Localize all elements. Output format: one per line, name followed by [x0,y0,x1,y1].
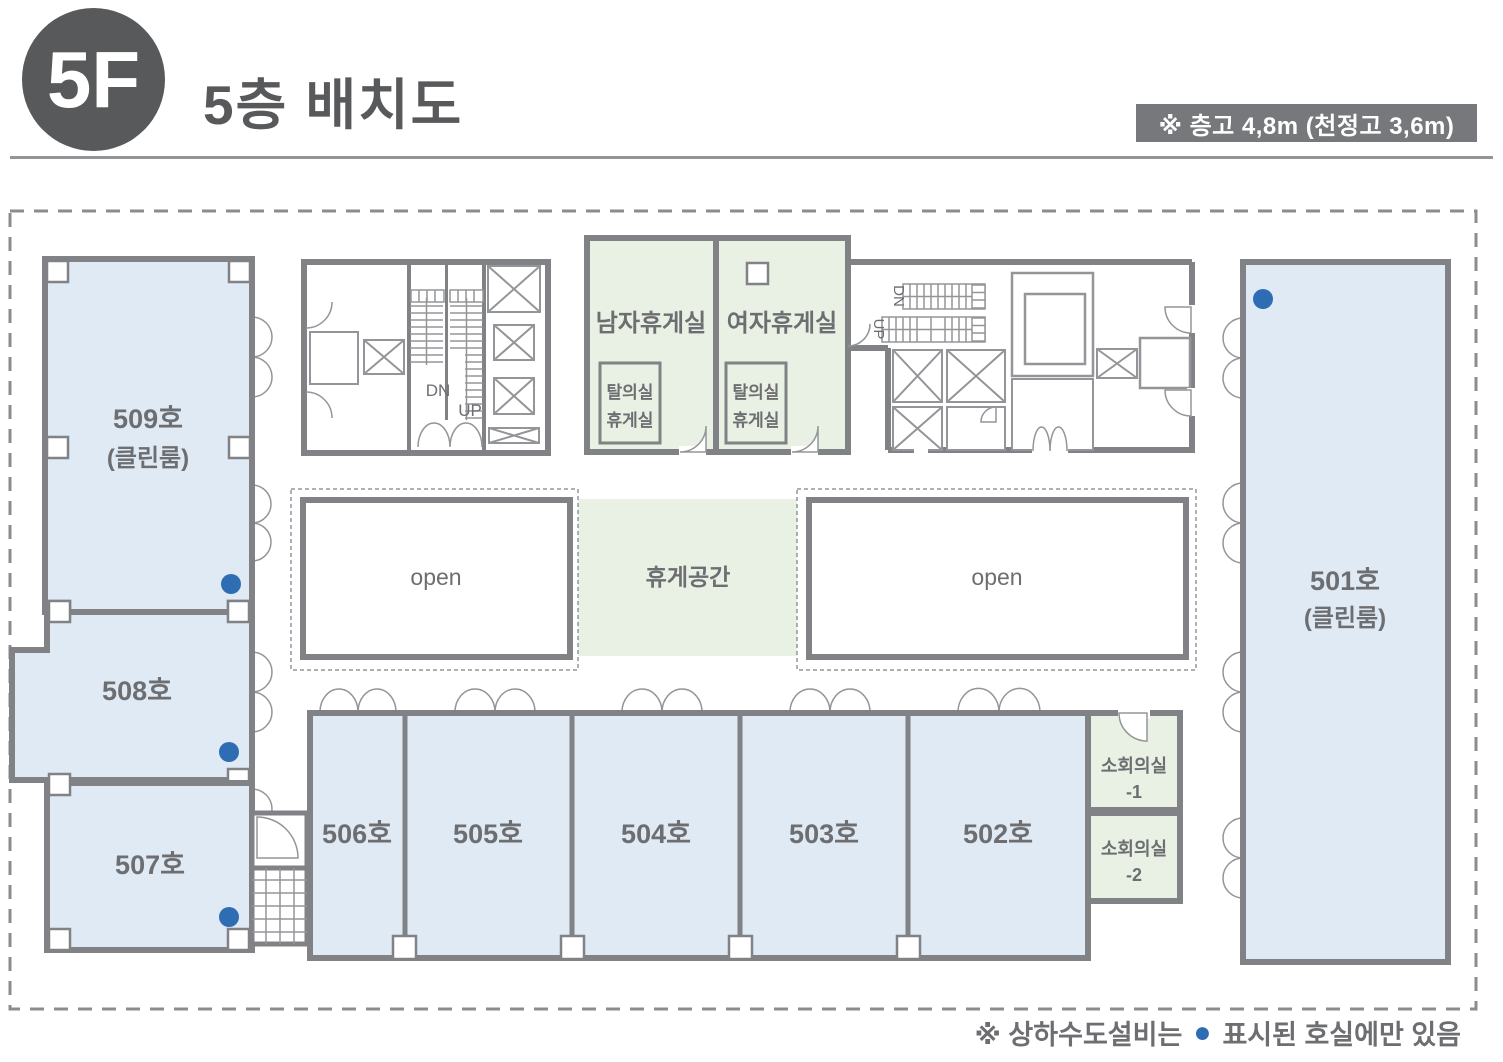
stairs-dn-label: DN [890,285,907,307]
door-arc [848,324,870,346]
room-outline [45,259,252,612]
room-506-label: 506호 [322,819,392,849]
meeting1-line2: -1 [1126,782,1142,802]
men-lounge-label: 남자휴게실 [596,310,706,337]
room-501-sublabel: (클린룸) [1304,605,1386,632]
elevator-icon [364,340,404,374]
dressing1-line1: 탈의실 [607,382,654,402]
meeting2-line2: -2 [1126,865,1142,885]
page-title: 5층 배치도 [203,60,463,140]
lounge-block: 남자휴게실 여자휴게실 탈의실 휴게실 탈의실 휴게실 [587,238,848,458]
room-507-label: 507호 [115,850,185,880]
water-supply-dot [219,742,239,762]
floor-plan-page: 5F 5층 배치도 ※ 층고 4,8m (천정고 3,6m) 509호 (클린룸… [0,0,1503,1062]
floor-height-note: ※ 층고 4,8m (천정고 3,6m) [1136,104,1477,142]
water-supply-dot [221,574,241,594]
room-509: 509호 (클린룸) [45,259,272,622]
machine-room [1140,338,1190,388]
column-marker [747,263,768,284]
shaft-box [310,332,358,384]
room-509-label: 509호 [113,404,183,434]
meeting-rooms: 소회의실 -1 소회의실 -2 [1088,708,1180,901]
stairs-up-label: UP [458,401,482,420]
room-508: 508호 [12,601,272,790]
header-divider [10,156,1493,159]
floor-badge-label: 5F [47,34,140,126]
bottom-room-row: 506호 505호 504호 503호 502호 [310,688,1088,959]
dressing2-line1: 탈의실 [733,382,780,402]
water-supply-dot [219,907,239,927]
room-504-label: 504호 [621,819,691,849]
atrium-band: open 휴게공간 open [291,489,1196,670]
note-prefix: ※ 상하수도설비는 [975,1013,1183,1052]
room-501-label: 501호 [1310,566,1380,596]
dressing1-line2: 휴게실 [607,410,654,430]
stairs-dn-label: DN [426,381,451,400]
wall-gap [914,447,928,455]
door-arc-pairs [320,688,1040,712]
rest-area-label: 휴게공간 [646,564,731,590]
service-shaft [252,813,307,944]
dressing2-line2: 휴게실 [733,410,780,430]
water-supply-dot: ● [1193,1018,1211,1048]
floor-badge: 5F [22,8,165,151]
room-505-label: 505호 [453,819,523,849]
room-501: 501호 (클린룸) [1223,262,1448,962]
stair-core-right: DN UP [845,262,1196,455]
women-lounge-label: 여자휴게실 [727,310,837,337]
room-509-sublabel: (클린룸) [107,445,189,472]
room-508-label: 508호 [102,676,172,706]
shaft-grid-lines [252,868,307,944]
note-suffix: 표시된 호실에만 있음 [1222,1013,1461,1052]
open-left-label: open [410,564,461,590]
elevator-icon [1097,349,1137,378]
water-supply-note: ※ 상하수도설비는 ● 표시된 호실에만 있음 [975,1013,1461,1052]
stairs-up-label: UP [870,319,887,340]
room-503-label: 503호 [789,819,859,849]
meeting2-line1: 소회의실 [1101,839,1167,859]
water-supply-dot [1253,289,1273,309]
elevator-hall-inner [1025,294,1085,364]
stair-core-left: DN UP [304,262,548,453]
meeting1-line1: 소회의실 [1101,756,1167,776]
floor-plan-canvas: 509호 (클린룸) 508호 507호 [0,0,1503,1062]
room-507: 507호 [47,774,272,950]
open-right-label: open [971,564,1022,590]
room-502-label: 502호 [963,819,1033,849]
